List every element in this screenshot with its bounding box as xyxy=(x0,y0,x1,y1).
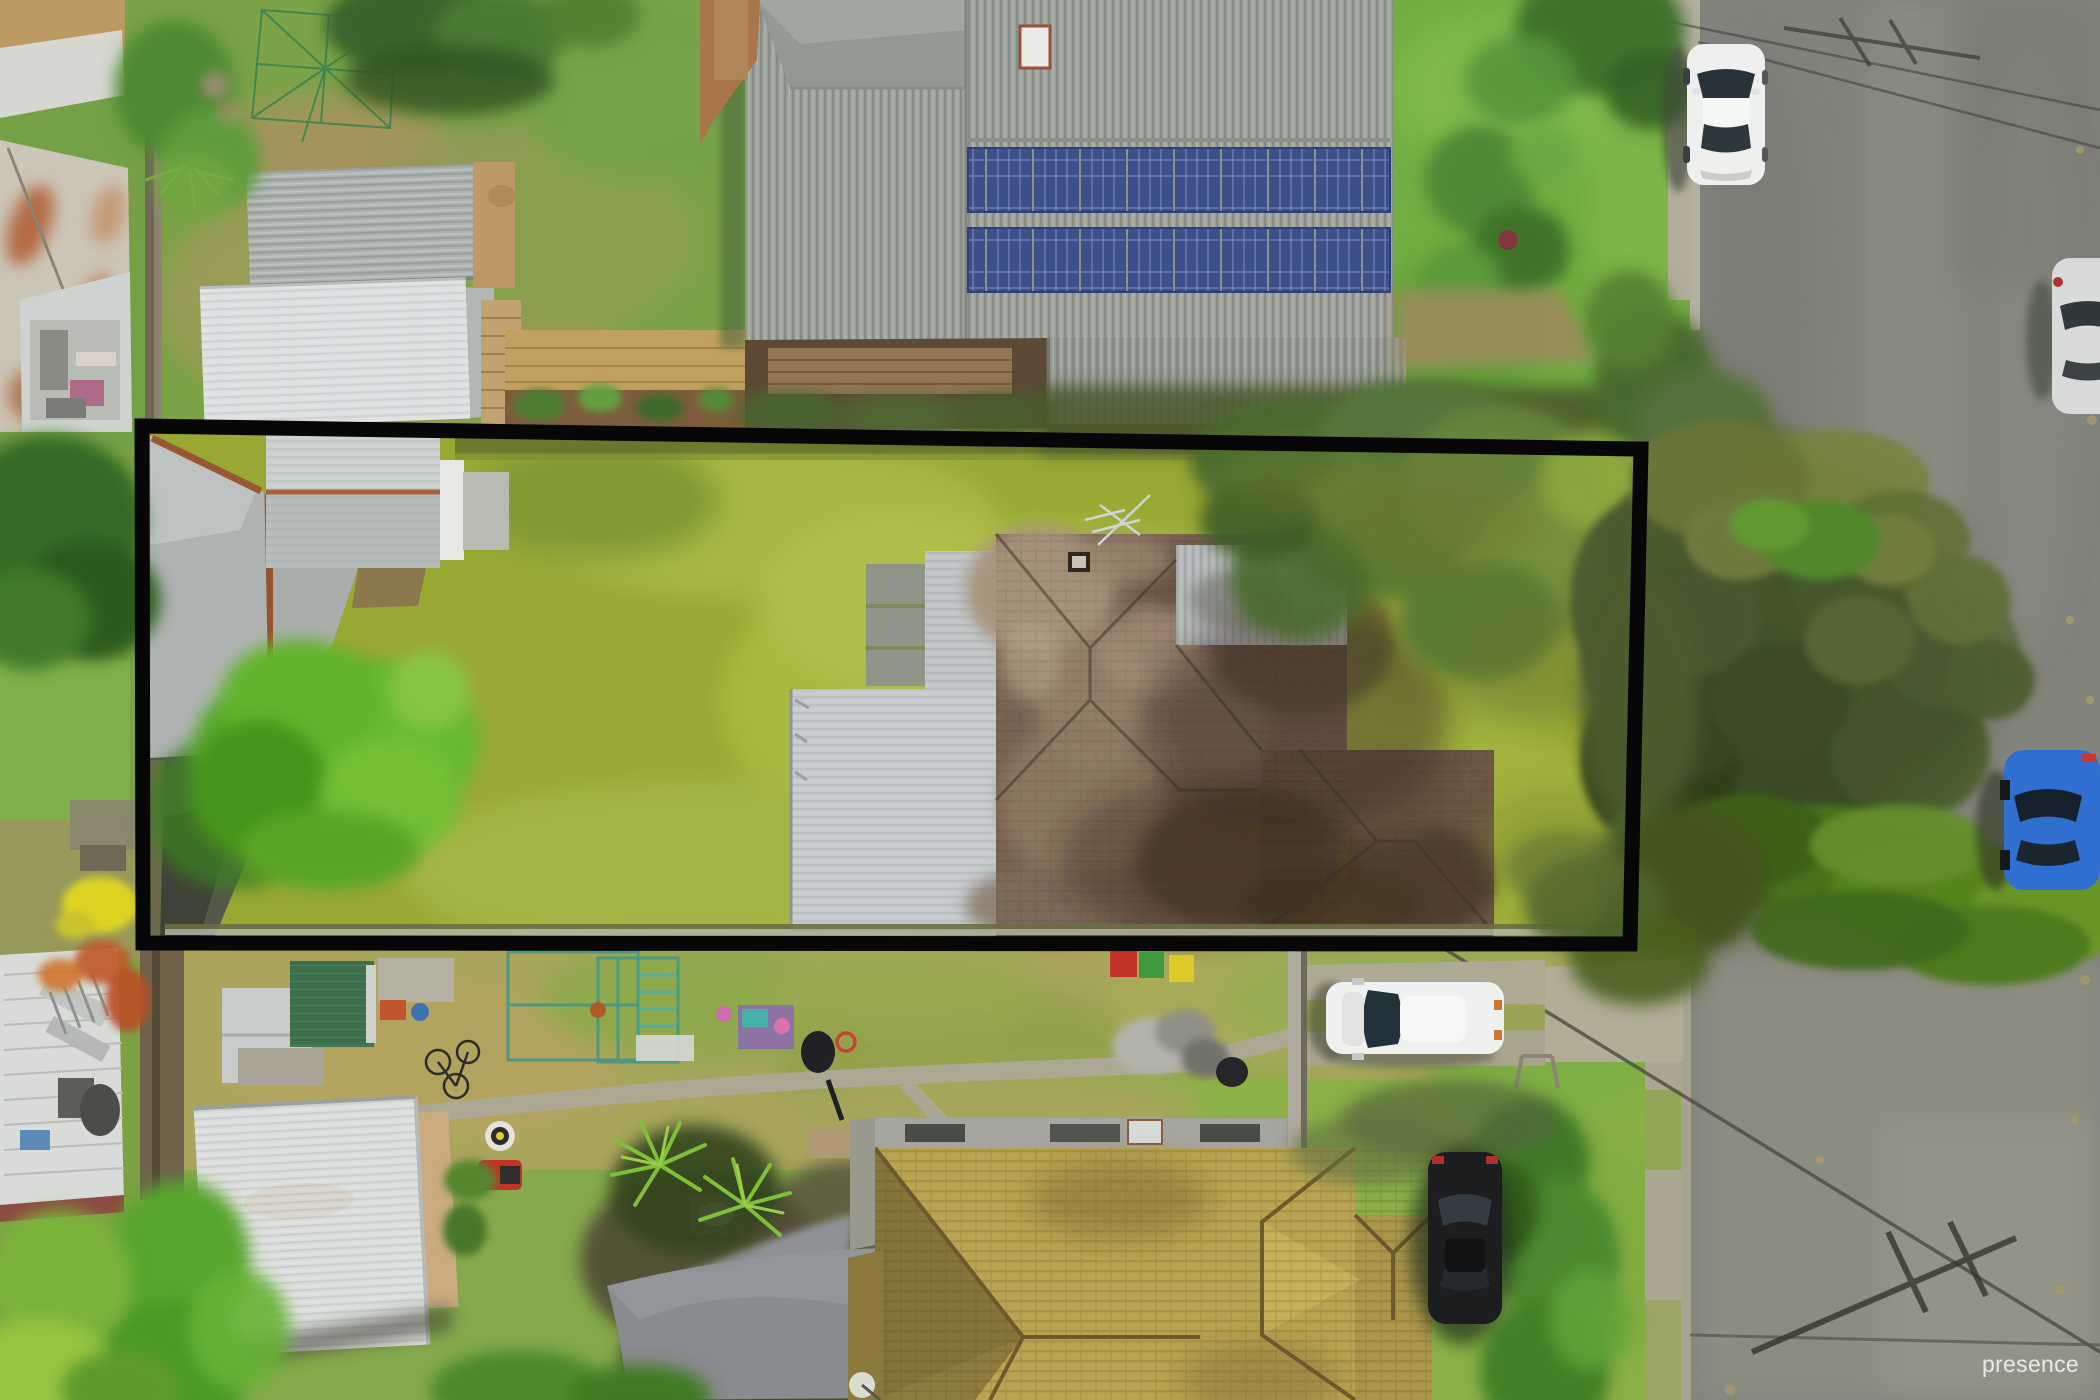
svg-text:presence: presence xyxy=(1982,1351,2079,1377)
